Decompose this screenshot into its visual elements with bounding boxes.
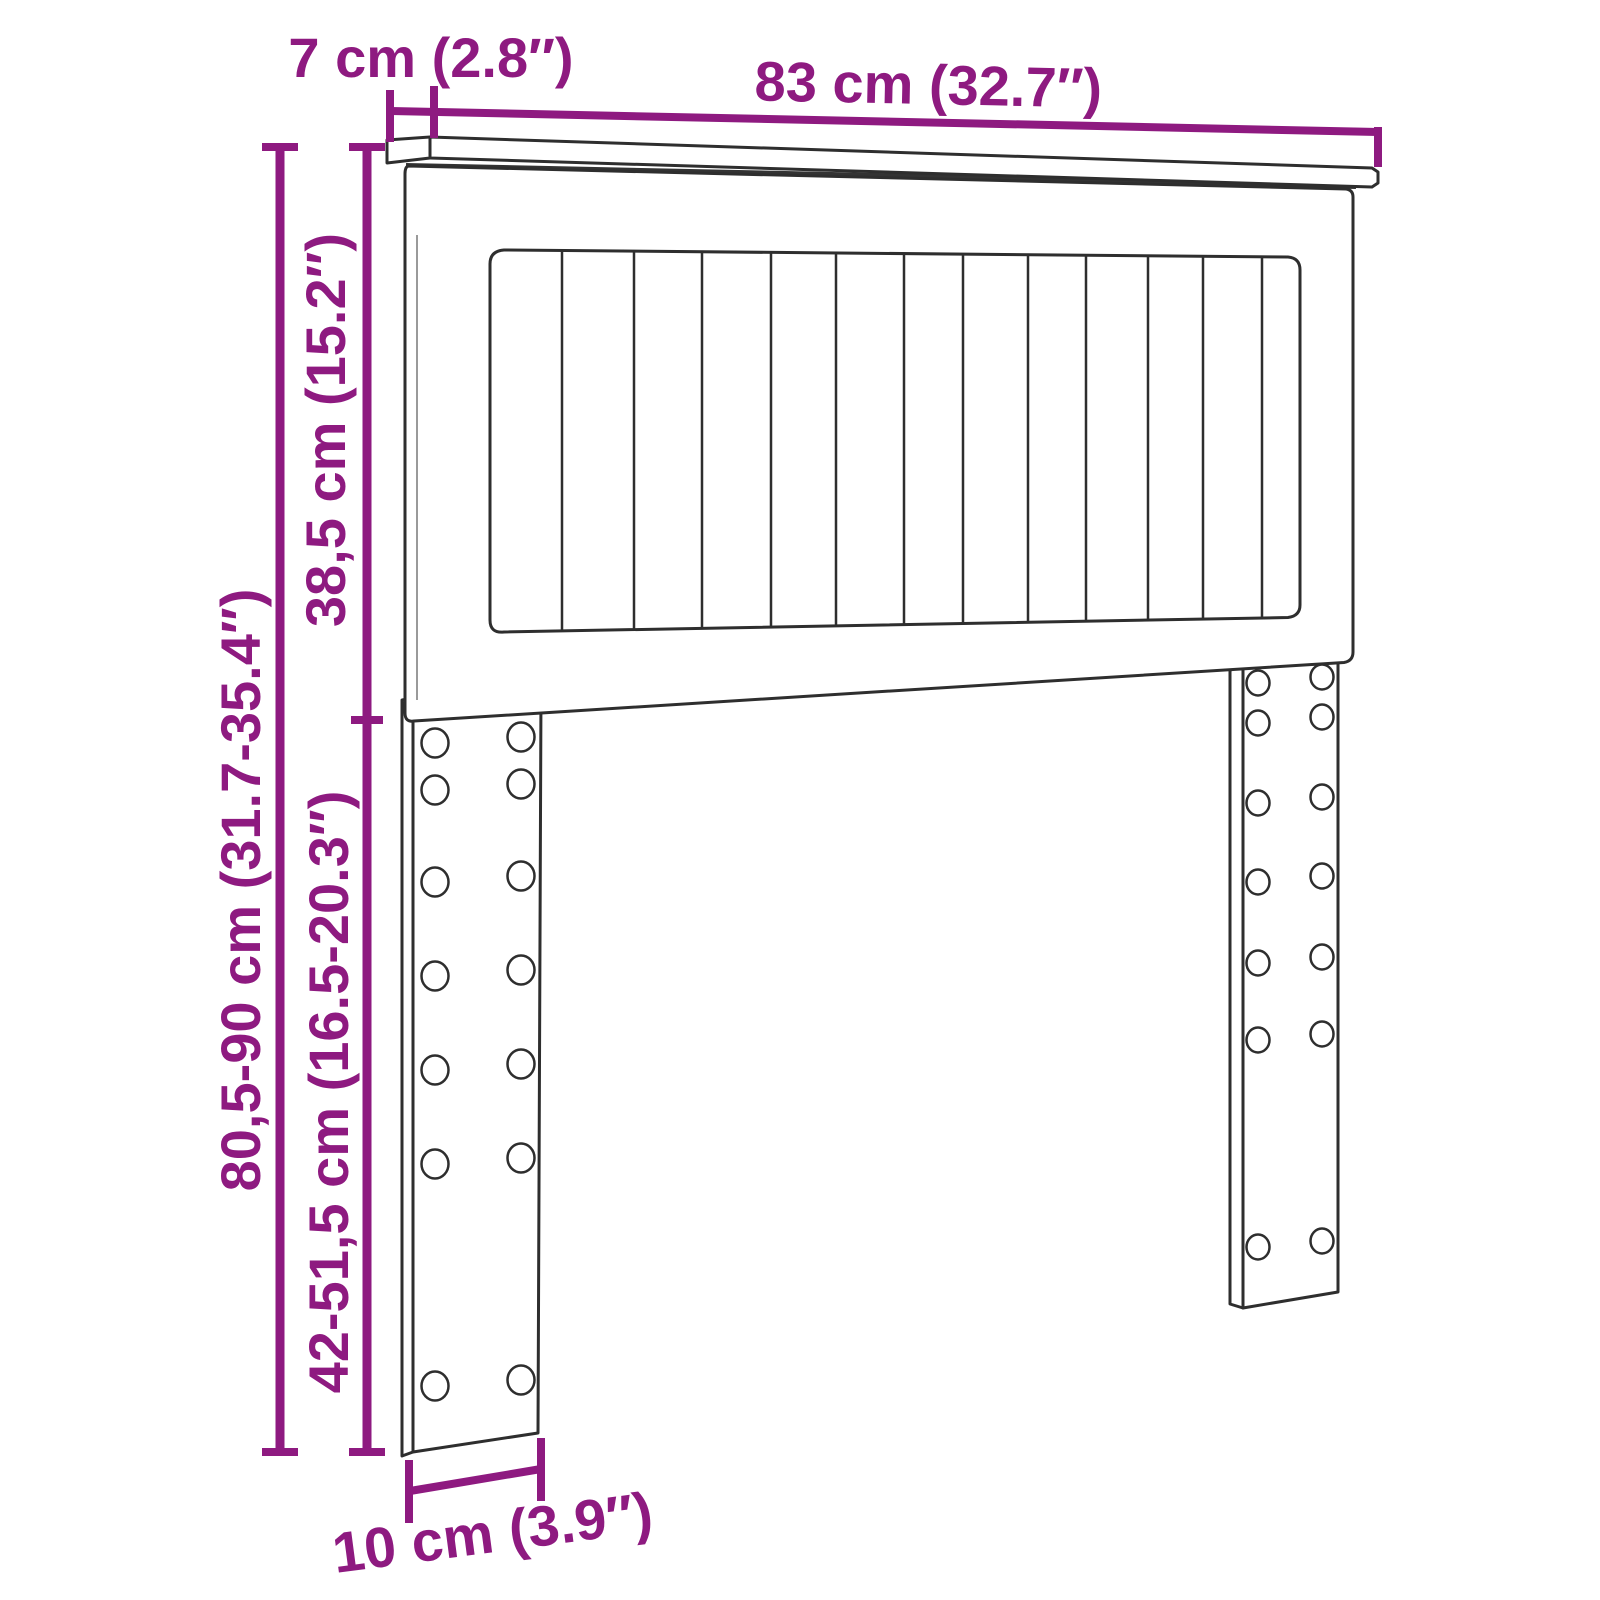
left-leg	[402, 690, 541, 1456]
leg-adjustment-hole	[422, 868, 449, 897]
left-leg-side-face	[402, 698, 413, 1456]
slat-panel	[490, 250, 1300, 632]
leg-adjustment-hole	[422, 1150, 449, 1179]
headboard-panel	[405, 166, 1353, 721]
leg-adjustment-hole	[1247, 951, 1270, 976]
leg-adjustment-hole	[1311, 665, 1334, 690]
leg-adjustment-hole	[508, 723, 535, 752]
diagram-canvas: 7 cm (2.8″) 83 cm (32.7″) 38,5 cm (15.2″…	[0, 0, 1600, 1600]
right-leg-front-face	[1243, 660, 1338, 1308]
leg-adjustment-hole	[1311, 1229, 1334, 1254]
diagram: 7 cm (2.8″) 83 cm (32.7″) 38,5 cm (15.2″…	[0, 0, 1600, 1600]
leg-adjustment-hole	[1311, 864, 1334, 889]
label-panel-height: 38,5 cm (15.2″)	[294, 233, 357, 627]
leg-adjustment-hole	[1247, 791, 1270, 816]
leg-adjustment-hole	[1247, 671, 1270, 696]
foot-width-line	[410, 1469, 541, 1491]
right-leg-side-face	[1230, 667, 1243, 1308]
leg-adjustment-hole	[508, 956, 535, 985]
leg-adjustment-hole	[422, 962, 449, 991]
leg-adjustment-hole	[1247, 1235, 1270, 1260]
label-overall-height: 80,5-90 cm (31.7-35.4″)	[209, 589, 272, 1192]
leg-adjustment-hole	[508, 1366, 535, 1395]
leg-adjustment-hole	[422, 729, 449, 758]
leg-adjustment-hole	[508, 770, 535, 799]
leg-adjustment-hole	[1311, 785, 1334, 810]
leg-adjustment-hole	[1247, 870, 1270, 895]
leg-adjustment-hole	[508, 1144, 535, 1173]
leg-adjustment-hole	[508, 1050, 535, 1079]
right-leg	[1230, 660, 1338, 1308]
leg-adjustment-hole	[1311, 1022, 1334, 1047]
label-overall-width: 83 cm (32.7″)	[754, 49, 1103, 119]
leg-adjustment-hole	[508, 862, 535, 891]
leg-adjustment-hole	[422, 776, 449, 805]
leg-adjustment-hole	[1311, 945, 1334, 970]
label-leg-height: 42-51,5 cm (16.5-20.3″)	[297, 791, 360, 1394]
label-foot-width: 10 cm (3.9″)	[329, 1480, 657, 1585]
leg-adjustment-hole	[1247, 711, 1270, 736]
headboard	[387, 137, 1378, 1456]
leg-adjustment-hole	[422, 1056, 449, 1085]
leg-adjustment-hole	[1311, 705, 1334, 730]
label-board-depth: 7 cm (2.8″)	[288, 26, 573, 89]
leg-adjustment-hole	[422, 1372, 449, 1401]
leg-adjustment-hole	[1247, 1028, 1270, 1053]
